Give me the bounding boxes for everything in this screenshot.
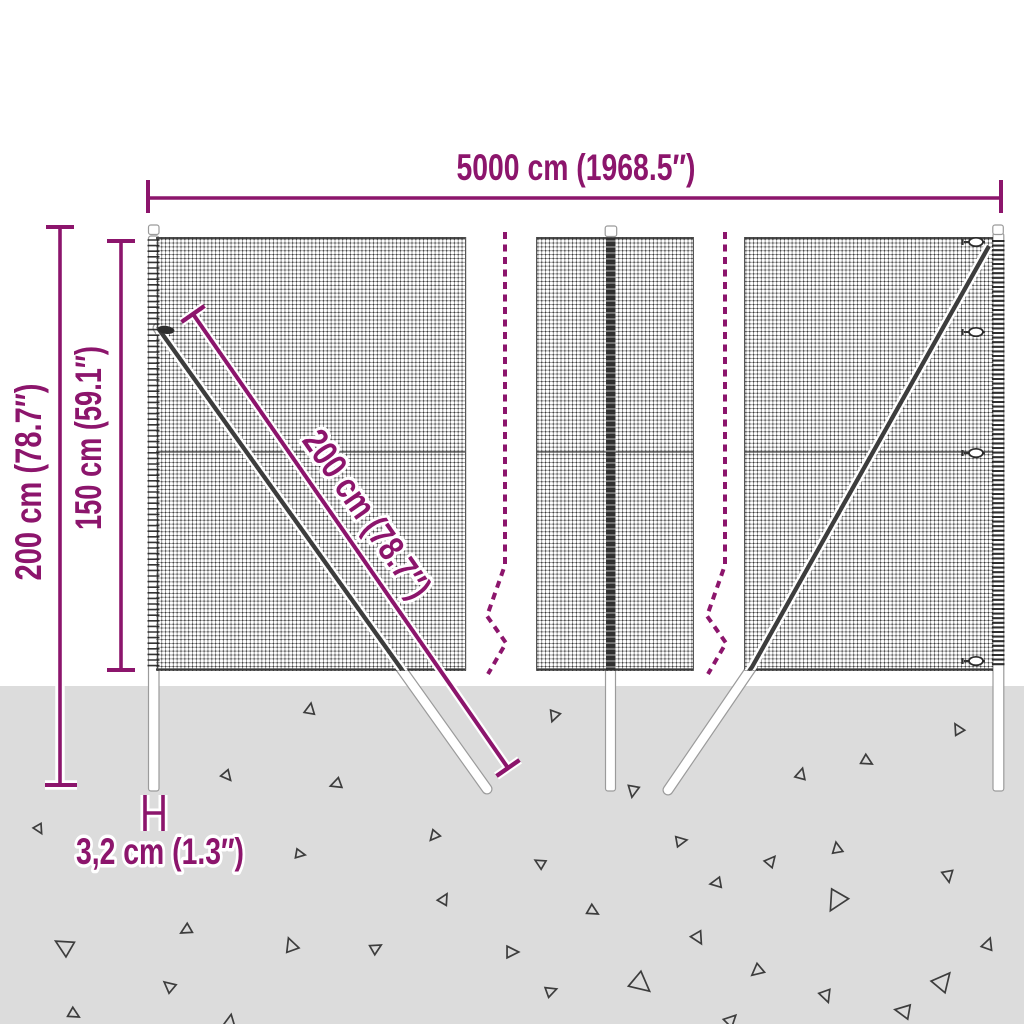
svg-text:150 cm (59.1″): 150 cm (59.1″) xyxy=(68,346,109,530)
svg-text:5000 cm (1968.5″): 5000 cm (1968.5″) xyxy=(457,147,696,188)
svg-text:3,2 cm (1.3″): 3,2 cm (1.3″) xyxy=(76,831,244,872)
svg-text:200 cm (78.7″): 200 cm (78.7″) xyxy=(8,384,49,581)
